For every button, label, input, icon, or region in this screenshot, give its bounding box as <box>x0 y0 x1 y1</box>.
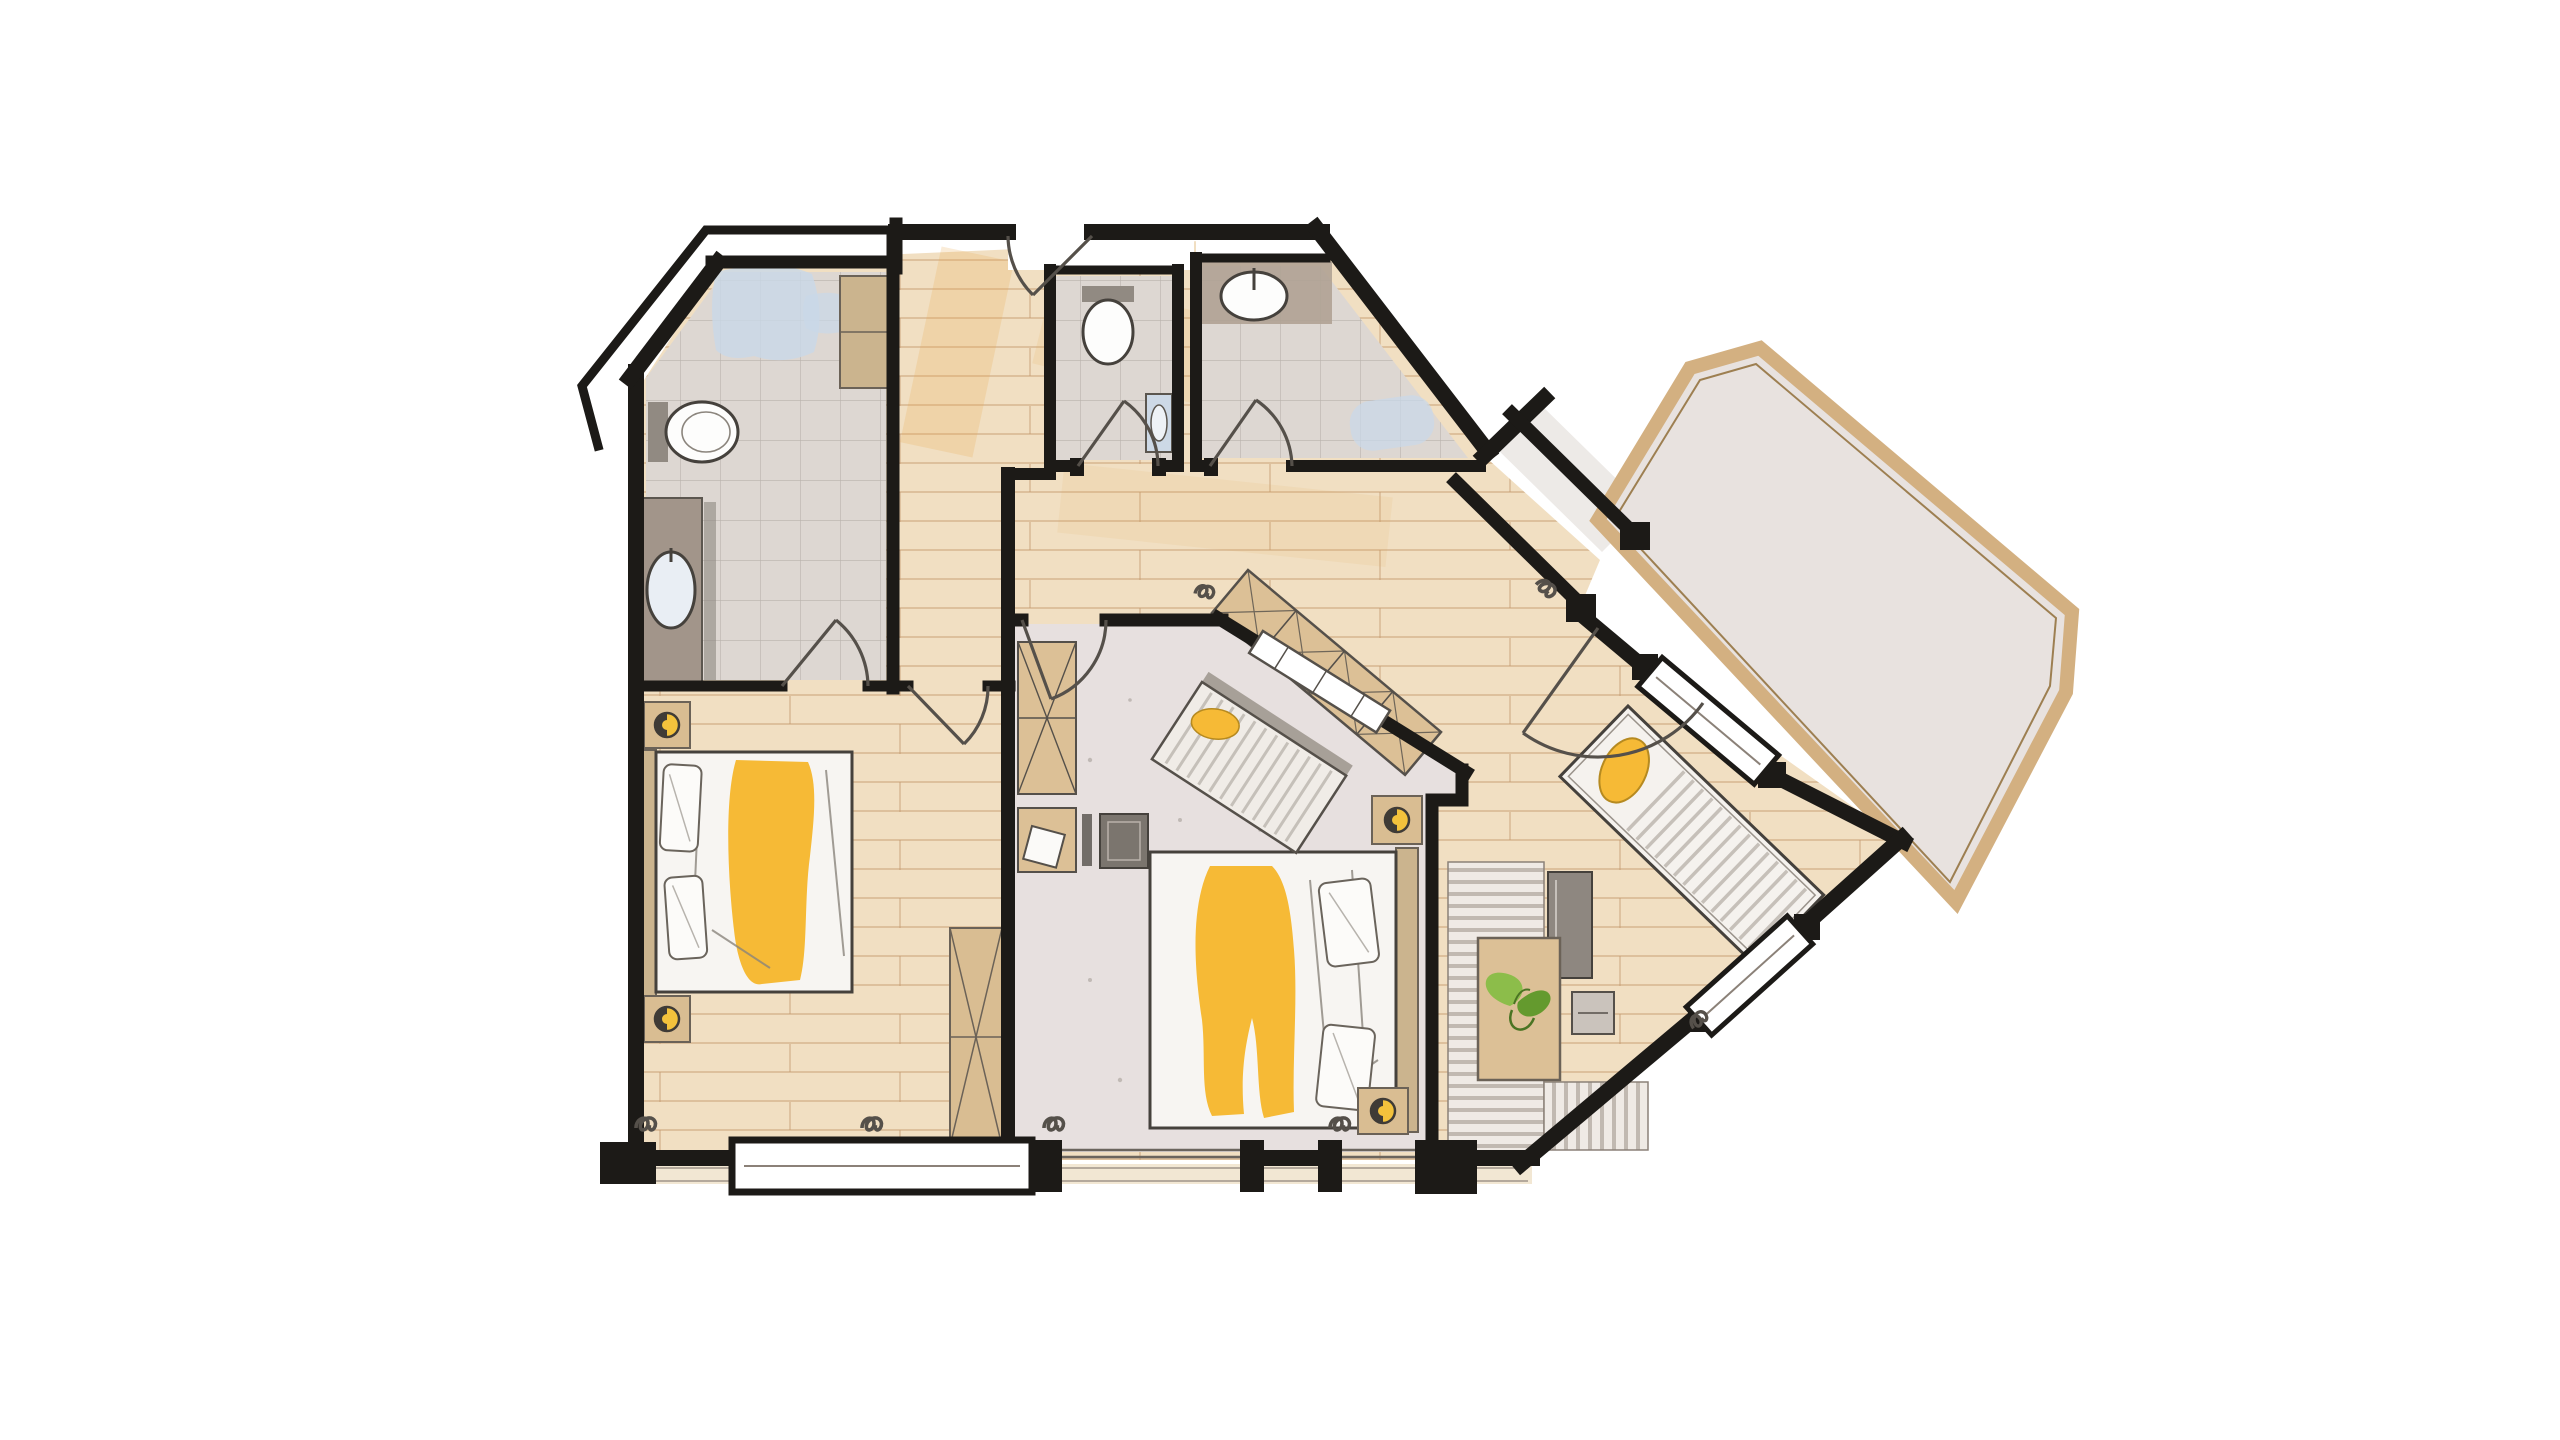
stool-lounge <box>1572 992 1614 1034</box>
bed-west-headboard <box>642 750 656 996</box>
jamb-bottom-3 <box>1318 1140 1342 1192</box>
floor-plan-page <box>0 0 2560 1440</box>
bed-west-blanket <box>728 760 814 984</box>
bed-west <box>642 750 852 996</box>
side-table-middle-room <box>1100 814 1148 868</box>
vanity-bathroom <box>640 498 716 682</box>
mirror <box>1082 814 1092 866</box>
wardrobe-middle-room <box>1018 642 1076 794</box>
sink-wc <box>1146 394 1172 452</box>
sink-bathroom <box>647 552 695 628</box>
jamb-bath-door <box>1204 458 1218 476</box>
nightstand-west-top <box>644 702 690 748</box>
nightstand-west-bottom <box>644 996 690 1042</box>
jamb-bottom-2 <box>1240 1140 1264 1192</box>
jamb-corridor-sw <box>1566 594 1596 622</box>
nightstand-middle-bottom <box>1358 1088 1408 1134</box>
bed-west-pillow-1 <box>659 764 701 852</box>
nightstand-middle-top <box>1372 796 1422 844</box>
bed-middle-pillow-1 <box>1318 878 1380 968</box>
vanity-shower-bath <box>1200 262 1332 324</box>
toilet-bathroom <box>648 402 738 462</box>
desk-chair <box>1023 826 1065 868</box>
toilet-wc <box>1082 286 1134 364</box>
plant-table-lounge <box>1478 938 1560 1080</box>
jamb-corner-bottom-left <box>600 1142 656 1184</box>
window-bedroom-west <box>732 1140 1032 1192</box>
jamb-bottom-1 <box>1032 1140 1062 1192</box>
jamb-corner-bottom-mid <box>1415 1140 1477 1194</box>
floor-plan-canvas <box>0 0 2560 1440</box>
jamb-corridor-ne <box>1620 522 1650 550</box>
bed-west-pillow-2 <box>664 875 708 959</box>
wardrobe-west-bedroom <box>950 928 1002 1146</box>
